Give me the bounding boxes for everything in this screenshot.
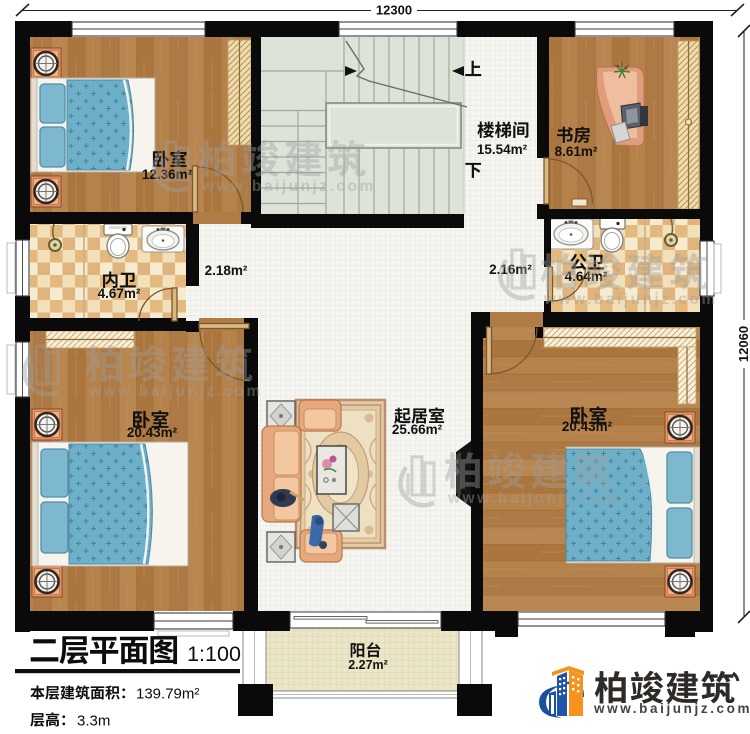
svg-text:1:100: 1:100 (187, 642, 241, 666)
svg-text:www.baijunjz.com: www.baijunjz.com (447, 490, 622, 507)
svg-text:2.27m²: 2.27m² (348, 658, 388, 672)
svg-text:www.baijunjz.com: www.baijunjz.com (543, 291, 718, 308)
svg-text:139.79m²: 139.79m² (136, 686, 199, 703)
svg-text:20.43m²: 20.43m² (127, 425, 178, 440)
svg-text:25.66m²: 25.66m² (392, 422, 443, 437)
svg-text:www.baijunjz.com: www.baijunjz.com (88, 383, 263, 400)
svg-text:3.3m: 3.3m (77, 713, 110, 730)
svg-text:8.61m²: 8.61m² (555, 144, 598, 159)
svg-text:12060: 12060 (736, 326, 750, 362)
svg-text:20.43m²: 20.43m² (562, 419, 613, 434)
svg-text:12300: 12300 (376, 3, 412, 18)
svg-text:www.baijunjz.com: www.baijunjz.com (593, 701, 750, 716)
svg-text:2.18m²: 2.18m² (205, 263, 248, 278)
svg-text:4.67m²: 4.67m² (98, 286, 141, 301)
svg-text:www.baijunjz.com: www.baijunjz.com (201, 178, 376, 195)
svg-text:15.54m²: 15.54m² (477, 142, 528, 157)
